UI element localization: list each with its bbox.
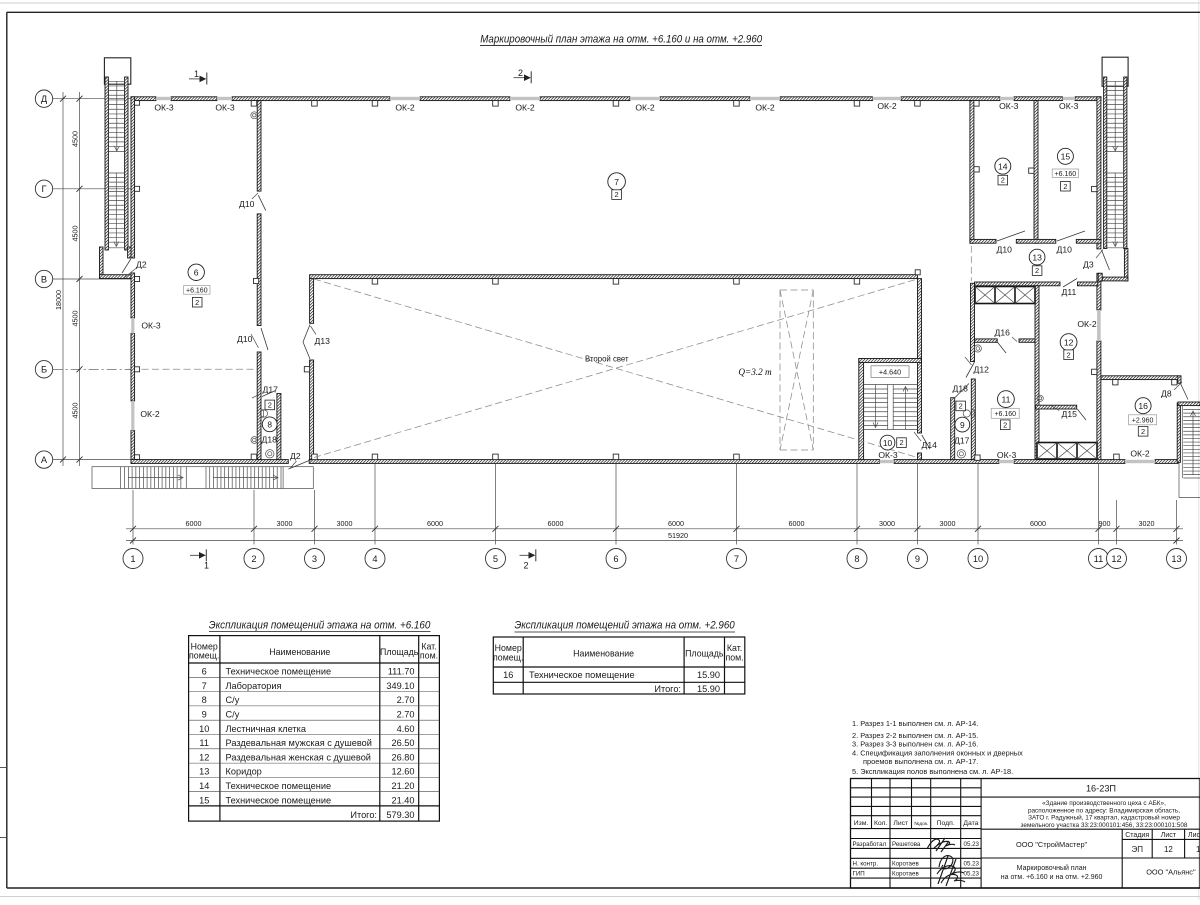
svg-text:12.60: 12.60: [392, 767, 415, 777]
svg-text:3000: 3000: [337, 519, 353, 528]
svg-text:Итого:: Итого:: [350, 810, 377, 820]
svg-text:Кол.: Кол.: [874, 820, 888, 827]
svg-text:Техническое помещение: Техническое помещение: [226, 781, 332, 791]
svg-text:05.23: 05.23: [964, 841, 980, 848]
svg-text:14: 14: [199, 781, 209, 791]
svg-text:Коротаев: Коротаев: [892, 861, 919, 868]
svg-text:11: 11: [1094, 554, 1104, 564]
svg-text:Площадь: Площадь: [380, 647, 419, 657]
svg-text:Изм.: Изм.: [854, 820, 869, 827]
svg-text:В: В: [41, 274, 47, 284]
svg-text:4.60: 4.60: [397, 724, 415, 734]
svg-text:9: 9: [202, 710, 207, 720]
svg-text:Техническое помещение: Техническое помещение: [226, 795, 332, 805]
svg-text:Коротаев: Коротаев: [892, 871, 919, 878]
svg-text:ОК-3: ОК-3: [878, 450, 898, 460]
svg-text:26.80: 26.80: [392, 752, 415, 762]
svg-text:10: 10: [199, 724, 209, 734]
svg-text:Д10: Д10: [237, 334, 253, 344]
svg-text:5: 5: [493, 554, 498, 564]
svg-text:6: 6: [613, 554, 618, 564]
svg-text:15.90: 15.90: [697, 670, 720, 680]
svg-text:ЭП: ЭП: [1131, 845, 1143, 854]
svg-text:5. Экспликация полов выполнена: 5. Экспликация полов выполнена см. л. АР…: [852, 767, 1013, 776]
svg-text:11: 11: [199, 738, 209, 748]
svg-text:Подп.: Подп.: [937, 820, 955, 827]
svg-text:Листов: Листов: [1188, 832, 1200, 839]
svg-text:05.23: 05.23: [964, 861, 980, 868]
svg-text:26.50: 26.50: [392, 738, 415, 748]
svg-text:Д3: Д3: [1083, 260, 1094, 270]
svg-text:С/у: С/у: [226, 695, 240, 705]
svg-text:ОК-3: ОК-3: [154, 103, 174, 113]
svg-text:579.30: 579.30: [386, 810, 414, 820]
svg-text:8: 8: [854, 554, 859, 564]
svg-text:12: 12: [1111, 554, 1121, 564]
svg-text:10: 10: [973, 554, 983, 564]
svg-text:6000: 6000: [186, 519, 202, 528]
svg-text:10: 10: [883, 438, 893, 448]
svg-text:16: 16: [503, 670, 513, 680]
svg-text:Д18: Д18: [262, 435, 278, 445]
svg-text:Б: Б: [41, 365, 47, 375]
svg-text:2: 2: [1063, 182, 1067, 191]
svg-text:ОК-2: ОК-2: [1130, 449, 1150, 459]
svg-text:2: 2: [899, 438, 903, 447]
svg-text:1: 1: [194, 69, 199, 79]
svg-text:ОК-2: ОК-2: [1077, 319, 1097, 329]
svg-text:2. Разрез 2-2 выполнен см. л.: 2. Разрез 2-2 выполнен см. л. АР-15.: [852, 731, 978, 740]
svg-text:8: 8: [267, 420, 272, 430]
svg-text:9: 9: [960, 420, 965, 430]
svg-text:6000: 6000: [1030, 519, 1046, 528]
svg-text:4500: 4500: [71, 226, 80, 242]
svg-text:2: 2: [251, 554, 256, 564]
svg-text:№док.: №док.: [914, 821, 928, 827]
svg-text:Итого:: Итого:: [654, 684, 681, 694]
svg-text:51920: 51920: [668, 531, 688, 540]
svg-text:+6.160: +6.160: [994, 411, 1016, 418]
svg-text:7: 7: [202, 681, 207, 691]
svg-text:Д12: Д12: [974, 364, 990, 374]
svg-text:на отм. +6.160 и на отм. +2.96: на отм. +6.160 и на отм. +2.960: [1001, 874, 1103, 881]
svg-text:18000: 18000: [54, 290, 63, 310]
svg-text:6000: 6000: [668, 519, 684, 528]
svg-text:3. Разрез 3-3 выполнен см. л.: 3. Разрез 3-3 выполнен см. л. АР-16.: [852, 740, 978, 749]
svg-text:Разработал: Разработал: [853, 841, 887, 848]
svg-text:Решетова: Решетова: [892, 841, 921, 848]
svg-text:Н. контр.: Н. контр.: [853, 861, 879, 868]
svg-text:+6.160: +6.160: [1055, 171, 1077, 178]
svg-text:12: 12: [1064, 337, 1074, 347]
svg-text:3: 3: [312, 554, 317, 564]
svg-text:Д18: Д18: [953, 384, 969, 394]
svg-text:Лист: Лист: [1161, 832, 1177, 839]
svg-text:6: 6: [202, 667, 207, 677]
svg-text:15.90: 15.90: [697, 684, 720, 694]
svg-text:2.70: 2.70: [397, 710, 415, 720]
svg-text:пом.: пом.: [420, 651, 438, 661]
svg-text:помещ.: помещ.: [189, 651, 219, 661]
svg-text:2: 2: [1141, 427, 1145, 436]
svg-text:ГИП: ГИП: [853, 871, 865, 878]
svg-text:Лестничная клетка: Лестничная клетка: [226, 724, 307, 734]
svg-text:Техническое помещение: Техническое помещение: [226, 667, 332, 677]
svg-text:16: 16: [1138, 401, 1148, 411]
svg-text:2: 2: [615, 190, 619, 199]
svg-text:2: 2: [1003, 420, 1007, 429]
svg-text:ОК-2: ОК-2: [877, 101, 897, 111]
svg-text:3000: 3000: [940, 519, 956, 528]
svg-text:Экспликация помещений этажа на: Экспликация помещений этажа на отм. +2.9…: [514, 620, 734, 632]
svg-text:Д14: Д14: [922, 440, 938, 450]
svg-text:Второй свет: Второй свет: [585, 355, 629, 364]
svg-text:13: 13: [1032, 252, 1042, 262]
svg-text:1: 1: [130, 554, 135, 564]
svg-text:Д: Д: [41, 94, 48, 104]
svg-text:4: 4: [372, 554, 377, 564]
svg-text:4500: 4500: [71, 403, 80, 419]
svg-text:ОК-2: ОК-2: [515, 103, 535, 113]
svg-text:проемов выполнена см. л. АР-17: проемов выполнена см. л. АР-17.: [863, 757, 978, 766]
svg-text:«Здание производственного цеха: «Здание производственного цеха с АБК»,: [1042, 800, 1166, 807]
svg-text:2: 2: [1001, 176, 1005, 185]
svg-text:Г: Г: [41, 184, 46, 194]
svg-text:2: 2: [523, 561, 528, 571]
svg-text:Площадь: Площадь: [685, 649, 724, 659]
svg-text:Маркировочный план: Маркировочный план: [1017, 864, 1087, 872]
svg-text:ООО "СтройМастер": ООО "СтройМастер": [1016, 840, 1088, 849]
svg-text:9: 9: [915, 554, 920, 564]
svg-text:6000: 6000: [789, 519, 805, 528]
svg-text:14: 14: [998, 161, 1008, 171]
svg-text:Д11: Д11: [1062, 287, 1077, 297]
svg-text:ОК-2: ОК-2: [755, 103, 775, 113]
svg-text:4. Спецификация заполнения око: 4. Спецификация заполнения оконных и две…: [852, 748, 1023, 757]
svg-text:+4.640: +4.640: [879, 367, 901, 376]
svg-text:11: 11: [1001, 394, 1010, 404]
svg-text:Маркировочный план этажа на от: Маркировочный план этажа на отм. +6.160 …: [480, 34, 763, 46]
svg-text:ОК-2: ОК-2: [140, 409, 160, 419]
svg-text:А: А: [41, 455, 48, 465]
svg-text:3000: 3000: [277, 519, 293, 528]
svg-text:Раздевальная женская с душевой: Раздевальная женская с душевой: [226, 752, 371, 762]
svg-text:13: 13: [199, 767, 209, 777]
svg-text:Коридор: Коридор: [226, 767, 262, 777]
svg-text:2: 2: [959, 402, 963, 411]
svg-text:земельного участка 33:23:00010: земельного участка 33:23:000101:456, 33:…: [1021, 822, 1188, 829]
svg-text:Д16: Д16: [995, 327, 1011, 337]
svg-text:13: 13: [1171, 554, 1181, 564]
svg-text:2: 2: [1067, 350, 1071, 359]
svg-text:6000: 6000: [548, 519, 564, 528]
svg-text:Д2: Д2: [136, 260, 147, 270]
svg-text:Д10: Д10: [239, 199, 255, 209]
svg-text:Q=3.2 m: Q=3.2 m: [738, 367, 772, 377]
svg-text:ОК-3: ОК-3: [141, 320, 161, 330]
svg-text:+6.160: +6.160: [186, 288, 208, 295]
svg-text:2: 2: [518, 68, 523, 78]
svg-text:15: 15: [1061, 152, 1071, 162]
svg-text:16-23П: 16-23П: [1086, 784, 1116, 794]
svg-text:4500: 4500: [71, 311, 80, 327]
svg-text:ОК-2: ОК-2: [395, 103, 415, 113]
svg-text:Стадия: Стадия: [1125, 832, 1149, 839]
svg-text:пом.: пом.: [726, 652, 744, 662]
svg-text:Д10: Д10: [997, 244, 1013, 254]
svg-text:Экспликация помещений этажа на: Экспликация помещений этажа на отм. +6.1…: [209, 619, 431, 631]
svg-text:6: 6: [194, 268, 199, 278]
svg-text:349.10: 349.10: [386, 681, 414, 691]
svg-text:ОК-3: ОК-3: [1059, 101, 1079, 111]
svg-text:Д10: Д10: [1057, 244, 1073, 254]
svg-text:ОК-2: ОК-2: [635, 103, 655, 113]
svg-text:2.70: 2.70: [397, 695, 415, 705]
svg-text:Д13: Д13: [315, 336, 331, 346]
svg-text:Раздевальная мужская с душевой: Раздевальная мужская с душевой: [226, 738, 372, 748]
svg-text:3020: 3020: [1139, 519, 1155, 528]
svg-text:Д2: Д2: [290, 451, 301, 461]
svg-text:8: 8: [202, 695, 207, 705]
svg-text:05.23: 05.23: [964, 871, 980, 878]
svg-text:12: 12: [199, 752, 209, 762]
svg-text:1. Разрез 1-1 выполнен см. л.: 1. Разрез 1-1 выполнен см. л. АР-14.: [852, 719, 978, 728]
svg-text:7: 7: [614, 177, 619, 187]
svg-text:Наименование: Наименование: [573, 649, 634, 659]
svg-text:расположенное по адресу: Влади: расположенное по адресу: Владимирская об…: [1028, 806, 1180, 814]
svg-text:Лист: Лист: [893, 820, 908, 827]
svg-text:Наименование: Наименование: [269, 647, 330, 657]
svg-text:6000: 6000: [427, 519, 443, 528]
svg-text:111.70: 111.70: [388, 667, 415, 677]
svg-text:3000: 3000: [879, 519, 895, 528]
svg-text:С/у: С/у: [226, 710, 240, 720]
svg-text:4500: 4500: [71, 131, 80, 147]
svg-text:ОК-3: ОК-3: [999, 101, 1019, 111]
svg-text:ООО "Альянс": ООО "Альянс": [1146, 867, 1196, 876]
svg-text:ОК-3: ОК-3: [997, 450, 1017, 460]
svg-text:Д15: Д15: [1062, 409, 1078, 419]
svg-text:7: 7: [734, 554, 739, 564]
svg-text:Техническое помещение: Техническое помещение: [529, 670, 635, 680]
svg-text:21.20: 21.20: [392, 781, 415, 791]
svg-text:12: 12: [1164, 845, 1173, 854]
svg-text:+2.960: +2.960: [1132, 418, 1154, 425]
svg-text:Дата: Дата: [963, 820, 978, 827]
svg-text:2: 2: [268, 401, 272, 410]
svg-text:21.40: 21.40: [392, 795, 415, 805]
svg-text:1: 1: [204, 561, 209, 571]
svg-text:Д17: Д17: [263, 385, 279, 395]
svg-text:Д8: Д8: [1161, 388, 1172, 398]
svg-text:2: 2: [1035, 266, 1039, 275]
svg-text:Д17: Д17: [954, 435, 970, 445]
svg-text:1: 1: [1196, 845, 1200, 854]
svg-text:2: 2: [195, 298, 199, 307]
svg-text:900: 900: [1099, 519, 1111, 528]
svg-text:ЗАТО г. Радужный, 17 квартал,: ЗАТО г. Радужный, 17 квартал, кадастровы…: [1028, 814, 1180, 822]
svg-text:15: 15: [199, 795, 209, 805]
svg-text:ОК-3: ОК-3: [215, 103, 235, 113]
svg-text:Лаборатория: Лаборатория: [226, 681, 282, 691]
svg-text:помещ.: помещ.: [493, 652, 523, 662]
